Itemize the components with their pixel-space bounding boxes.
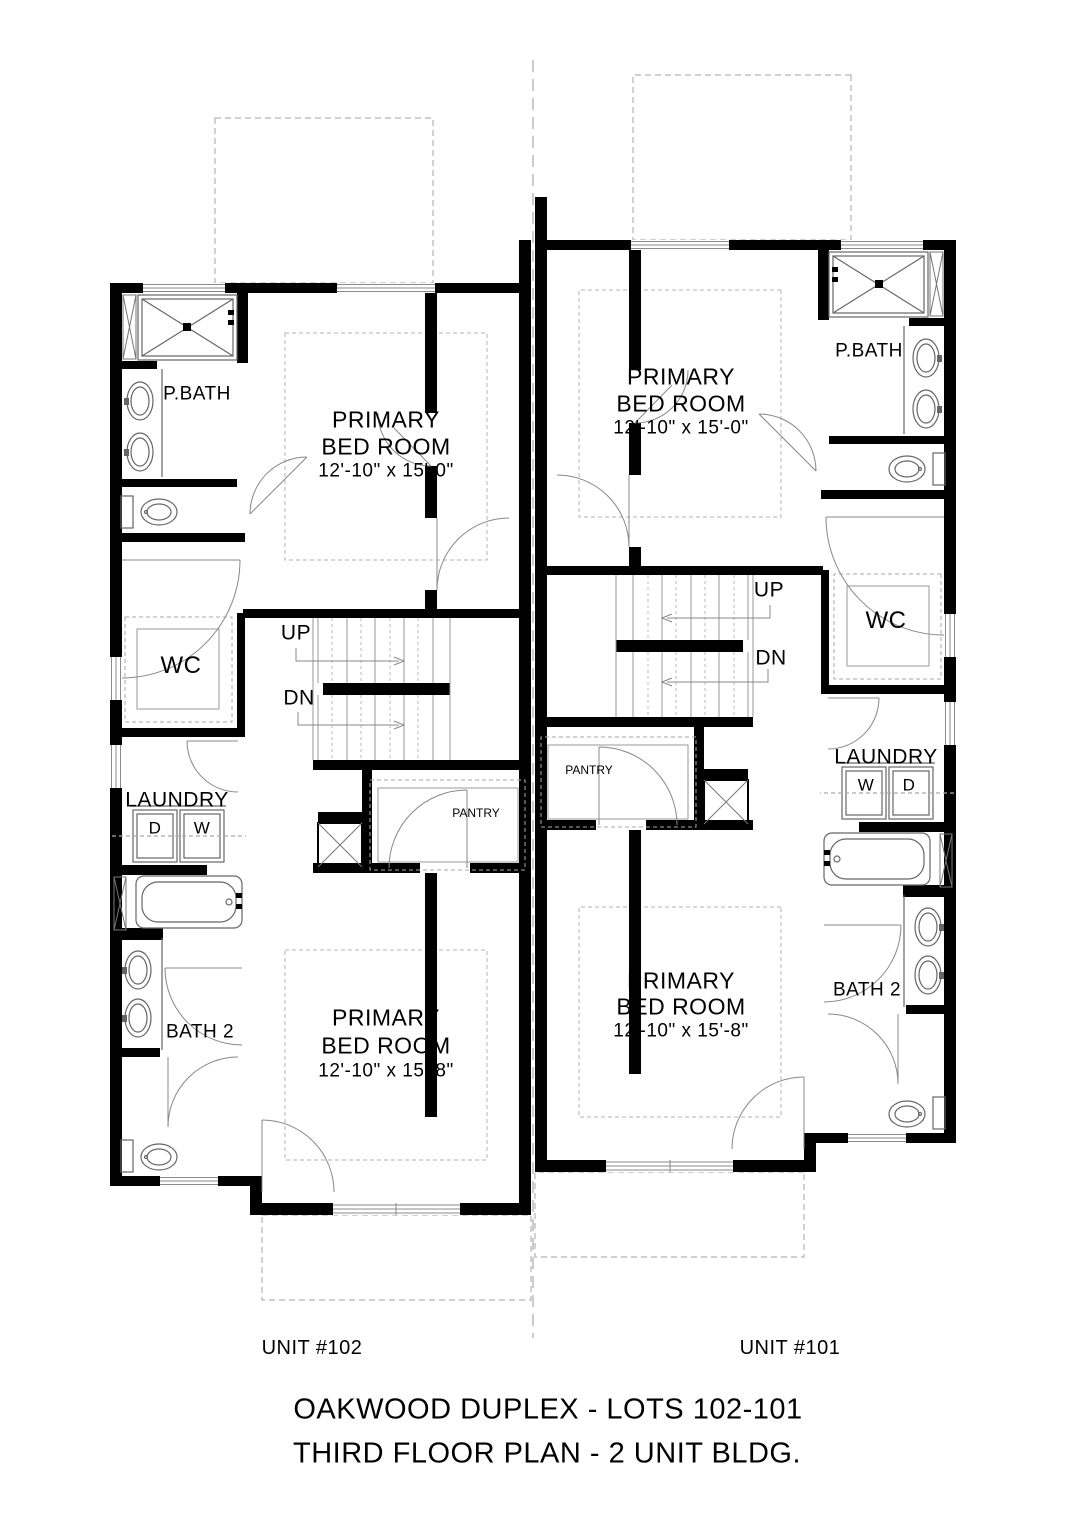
room-label-laundry-101: LAUNDRY xyxy=(834,747,937,768)
room-dims-bed1-101: 12'-10" x 15'-0" xyxy=(613,419,748,438)
room-label-bed1-102-line2: BED ROOM xyxy=(321,436,450,459)
unit-101-plan xyxy=(535,75,956,1257)
shower xyxy=(138,295,237,360)
toilet xyxy=(121,496,177,528)
stair-label-dn-101: DN xyxy=(755,648,786,669)
appliance-label-washer-101: W xyxy=(858,777,875,794)
appliance-label-washer-102: W xyxy=(194,820,211,837)
unit-label-102: UNIT #102 xyxy=(262,1338,363,1358)
pantry-shelving xyxy=(370,780,525,870)
mechanical-chase xyxy=(318,823,362,867)
room-label-bed2-101-line1: PRIMARY xyxy=(627,970,735,993)
room-dims-bed2-101: 12'-10" x 15'-8" xyxy=(613,1022,748,1041)
stair-label-up-101: UP xyxy=(754,580,784,601)
unit-label-101: UNIT #101 xyxy=(740,1338,841,1358)
room-label-laundry-102: LAUNDRY xyxy=(125,790,228,811)
bath2-vanity xyxy=(122,938,162,1050)
sheet-title-line1: OAKWOOD DUPLEX - LOTS 102-101 xyxy=(293,1396,802,1425)
room-label-pantry-102: PANTRY xyxy=(452,807,500,819)
bathtub xyxy=(136,876,242,928)
appliance-label-dryer-101: D xyxy=(903,777,916,794)
room-label-pbath-101: P.BATH xyxy=(835,342,903,361)
room-label-bed2-101-line2: BED ROOM xyxy=(616,996,745,1019)
room-dims-bed2-102: 12'-10" x 15'-8" xyxy=(318,1062,453,1081)
room-label-wc-102: WC xyxy=(161,654,202,678)
room-label-bed2-102-line2: BED ROOM xyxy=(321,1035,450,1058)
stair-label-dn-102: DN xyxy=(283,688,314,709)
room-label-bed1-101-line1: PRIMARY xyxy=(627,366,735,389)
room-label-pbath-102: P.BATH xyxy=(163,385,231,404)
room-label-bed1-102-line1: PRIMARY xyxy=(332,409,440,432)
toilet xyxy=(121,1140,177,1172)
washer-dryer xyxy=(112,806,246,862)
appliance-label-dryer-102: D xyxy=(149,820,162,837)
floor-plan-page: P.BATH PRIMARY BED ROOM 12'-10" x 15'-0"… xyxy=(0,0,1080,1535)
room-label-wc-101: WC xyxy=(866,609,907,633)
room-label-bed2-102-line1: PRIMARY xyxy=(332,1007,440,1030)
sheet-title-line2: THIRD FLOOR PLAN - 2 UNIT BLDG. xyxy=(293,1440,801,1469)
room-label-bed1-101-line2: BED ROOM xyxy=(616,393,745,416)
room-dims-bed1-102: 12'-10" x 15'-0" xyxy=(318,462,453,481)
room-label-bath2-101: BATH 2 xyxy=(833,981,901,1000)
room-label-pantry-101: PANTRY xyxy=(565,764,613,776)
stair-label-up-102: UP xyxy=(281,623,311,644)
unit-102-plan xyxy=(110,118,531,1300)
pbath-vanity xyxy=(124,369,162,477)
room-label-bath2-102: BATH 2 xyxy=(166,1023,234,1042)
